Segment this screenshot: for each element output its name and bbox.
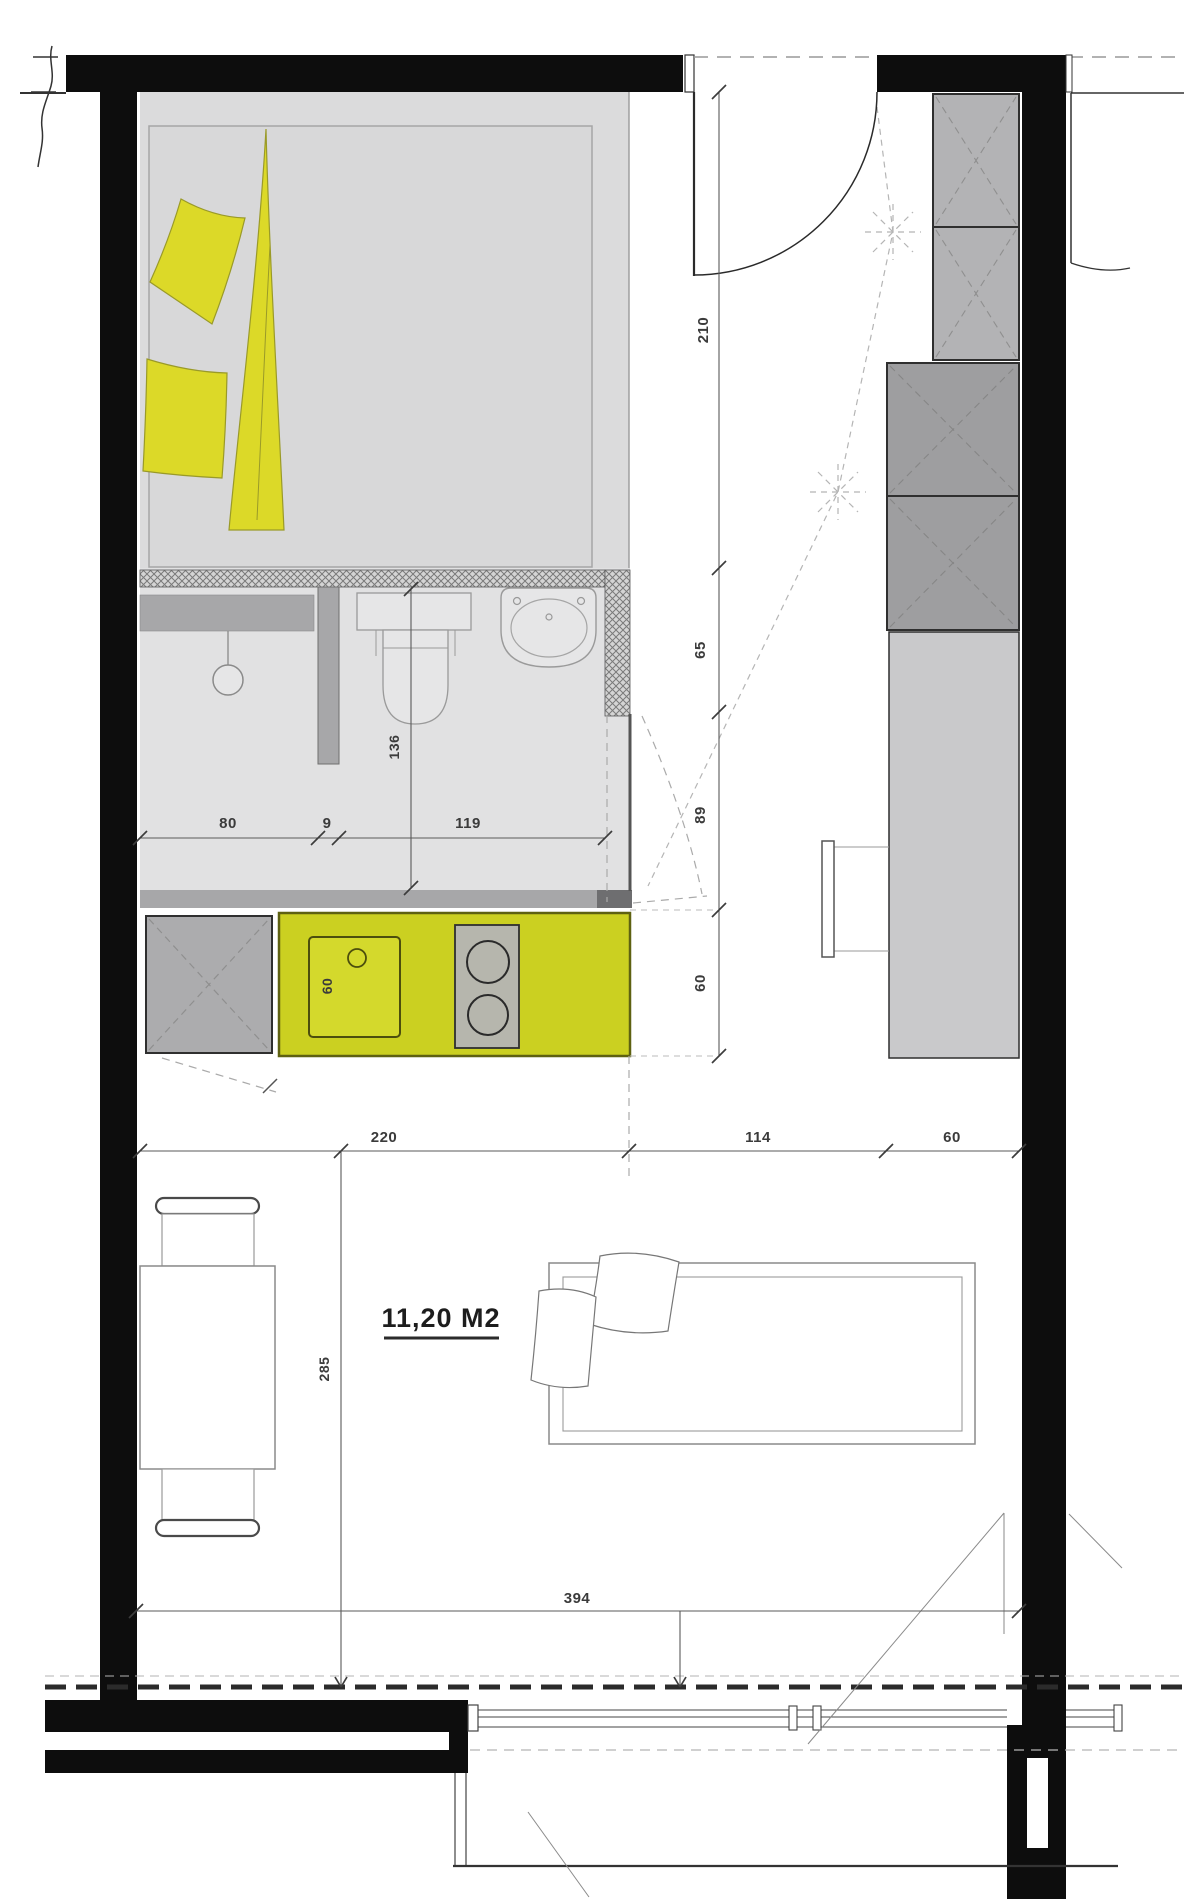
wall-bottom-inner [45,1750,468,1773]
shower-wall-band [140,595,314,631]
dim-60-sink: 60 [319,978,335,995]
glazing-cap-left [468,1705,478,1731]
floor-plan-canvas: 210 65 89 60 80 9 119 136 60 220 114 60 … [0,0,1184,1900]
dim-136: 136 [386,735,402,760]
bathroom-wall-bottom [140,890,632,908]
bathroom-wall-hatch-top [140,570,605,587]
dim-60-wardrobe: 60 [943,1129,961,1146]
sofa-pillow-top [589,1253,679,1333]
wall-bottom-connector [449,1700,468,1773]
dim-114: 114 [745,1129,771,1146]
wall-top-right [877,55,1066,92]
bed [143,126,592,567]
chair-bottom-seat [162,1469,254,1521]
bed-mattress [149,126,592,567]
entry-door-jamb [685,55,694,92]
sofa-pillow-left [531,1289,596,1388]
dim-119: 119 [455,815,481,832]
sofa-daybed [531,1253,975,1444]
chair-top-seat [162,1214,254,1266]
wall-bottom-outer [45,1700,449,1732]
cooktop [455,925,519,1048]
bathroom-partition [318,587,339,764]
floor-plan-drawing: 210 65 89 60 80 9 119 136 60 220 114 60 … [0,0,1184,1900]
tall-wardrobe [889,632,1019,1058]
wall-pier-slot [1027,1758,1048,1848]
toilet-bowl [383,630,448,724]
dim-285: 285 [316,1357,332,1382]
bathroom-wall-hatch-right [605,570,630,716]
dim-210: 210 [695,317,712,344]
dim-65: 65 [692,641,709,659]
glazing-mullion-2 [813,1706,821,1730]
dim-220: 220 [371,1129,398,1146]
glazing-mullion-1 [789,1706,797,1730]
chair-bottom-back [156,1520,259,1536]
dim-80: 80 [219,815,237,832]
room-area-label: 11,20 M2 [381,1303,500,1333]
dining-table [140,1266,275,1469]
wall-left [100,92,137,1700]
wall-right [1022,92,1066,1725]
toilet-cistern [357,593,471,630]
bed-pillow-bottom [143,359,227,478]
wardrobe-handle [822,841,834,957]
dim-89: 89 [692,806,709,824]
bathroom-wall-bottom-dark [597,890,632,908]
washbasin-body [501,588,596,667]
wall-top [66,55,683,92]
glazing-cap-right [1114,1705,1122,1731]
dim-60-counter: 60 [692,974,709,992]
washbasin [501,588,596,667]
dim-394: 394 [564,1590,591,1607]
chair-top-back [156,1198,259,1214]
neighbor-door-jamb [1066,55,1072,92]
shower-drain [213,665,243,695]
dim-9: 9 [323,815,332,832]
